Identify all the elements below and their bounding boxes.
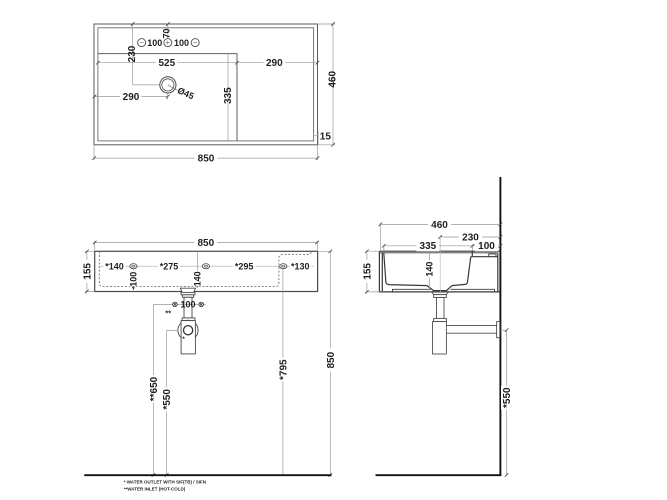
svg-text:*795: *795 <box>278 359 289 380</box>
svg-text:15: 15 <box>320 131 332 142</box>
svg-text:100: 100 <box>478 241 495 252</box>
svg-text:100: 100 <box>180 300 195 310</box>
svg-text:*550: *550 <box>502 387 513 408</box>
svg-text:335: 335 <box>420 241 437 252</box>
svg-text:**: ** <box>165 308 171 317</box>
svg-text:460: 460 <box>431 220 448 231</box>
svg-text:100: 100 <box>129 272 139 287</box>
svg-text:70: 70 <box>162 28 172 38</box>
svg-text:850: 850 <box>326 351 337 368</box>
svg-text:525: 525 <box>158 58 175 69</box>
svg-text:* WATER OUTLET WITH SIF(TB) /: * WATER OUTLET WITH SIF(TB) / SIFN <box>124 480 206 485</box>
svg-text:*295: *295 <box>235 261 254 271</box>
svg-text:*130: *130 <box>291 261 310 271</box>
svg-text:140: 140 <box>425 262 435 277</box>
svg-text:100: 100 <box>174 38 189 48</box>
svg-text:*275: *275 <box>160 261 179 271</box>
svg-text:**WATER INLET (HOT-COLD): **WATER INLET (HOT-COLD) <box>124 487 186 492</box>
svg-text:230: 230 <box>127 45 138 62</box>
svg-text:155: 155 <box>362 263 373 280</box>
svg-text:850: 850 <box>198 154 215 165</box>
svg-text:460: 460 <box>327 71 338 88</box>
svg-text:*550: *550 <box>162 389 173 410</box>
svg-text:140: 140 <box>193 271 203 286</box>
svg-text:*140: *140 <box>105 261 124 271</box>
svg-text:290: 290 <box>123 92 140 103</box>
svg-text:335: 335 <box>223 87 234 104</box>
svg-text:100: 100 <box>147 38 162 48</box>
svg-text:850: 850 <box>197 238 214 249</box>
svg-text:**650: **650 <box>149 376 160 401</box>
svg-text:290: 290 <box>266 58 283 69</box>
svg-text:155: 155 <box>82 263 93 280</box>
